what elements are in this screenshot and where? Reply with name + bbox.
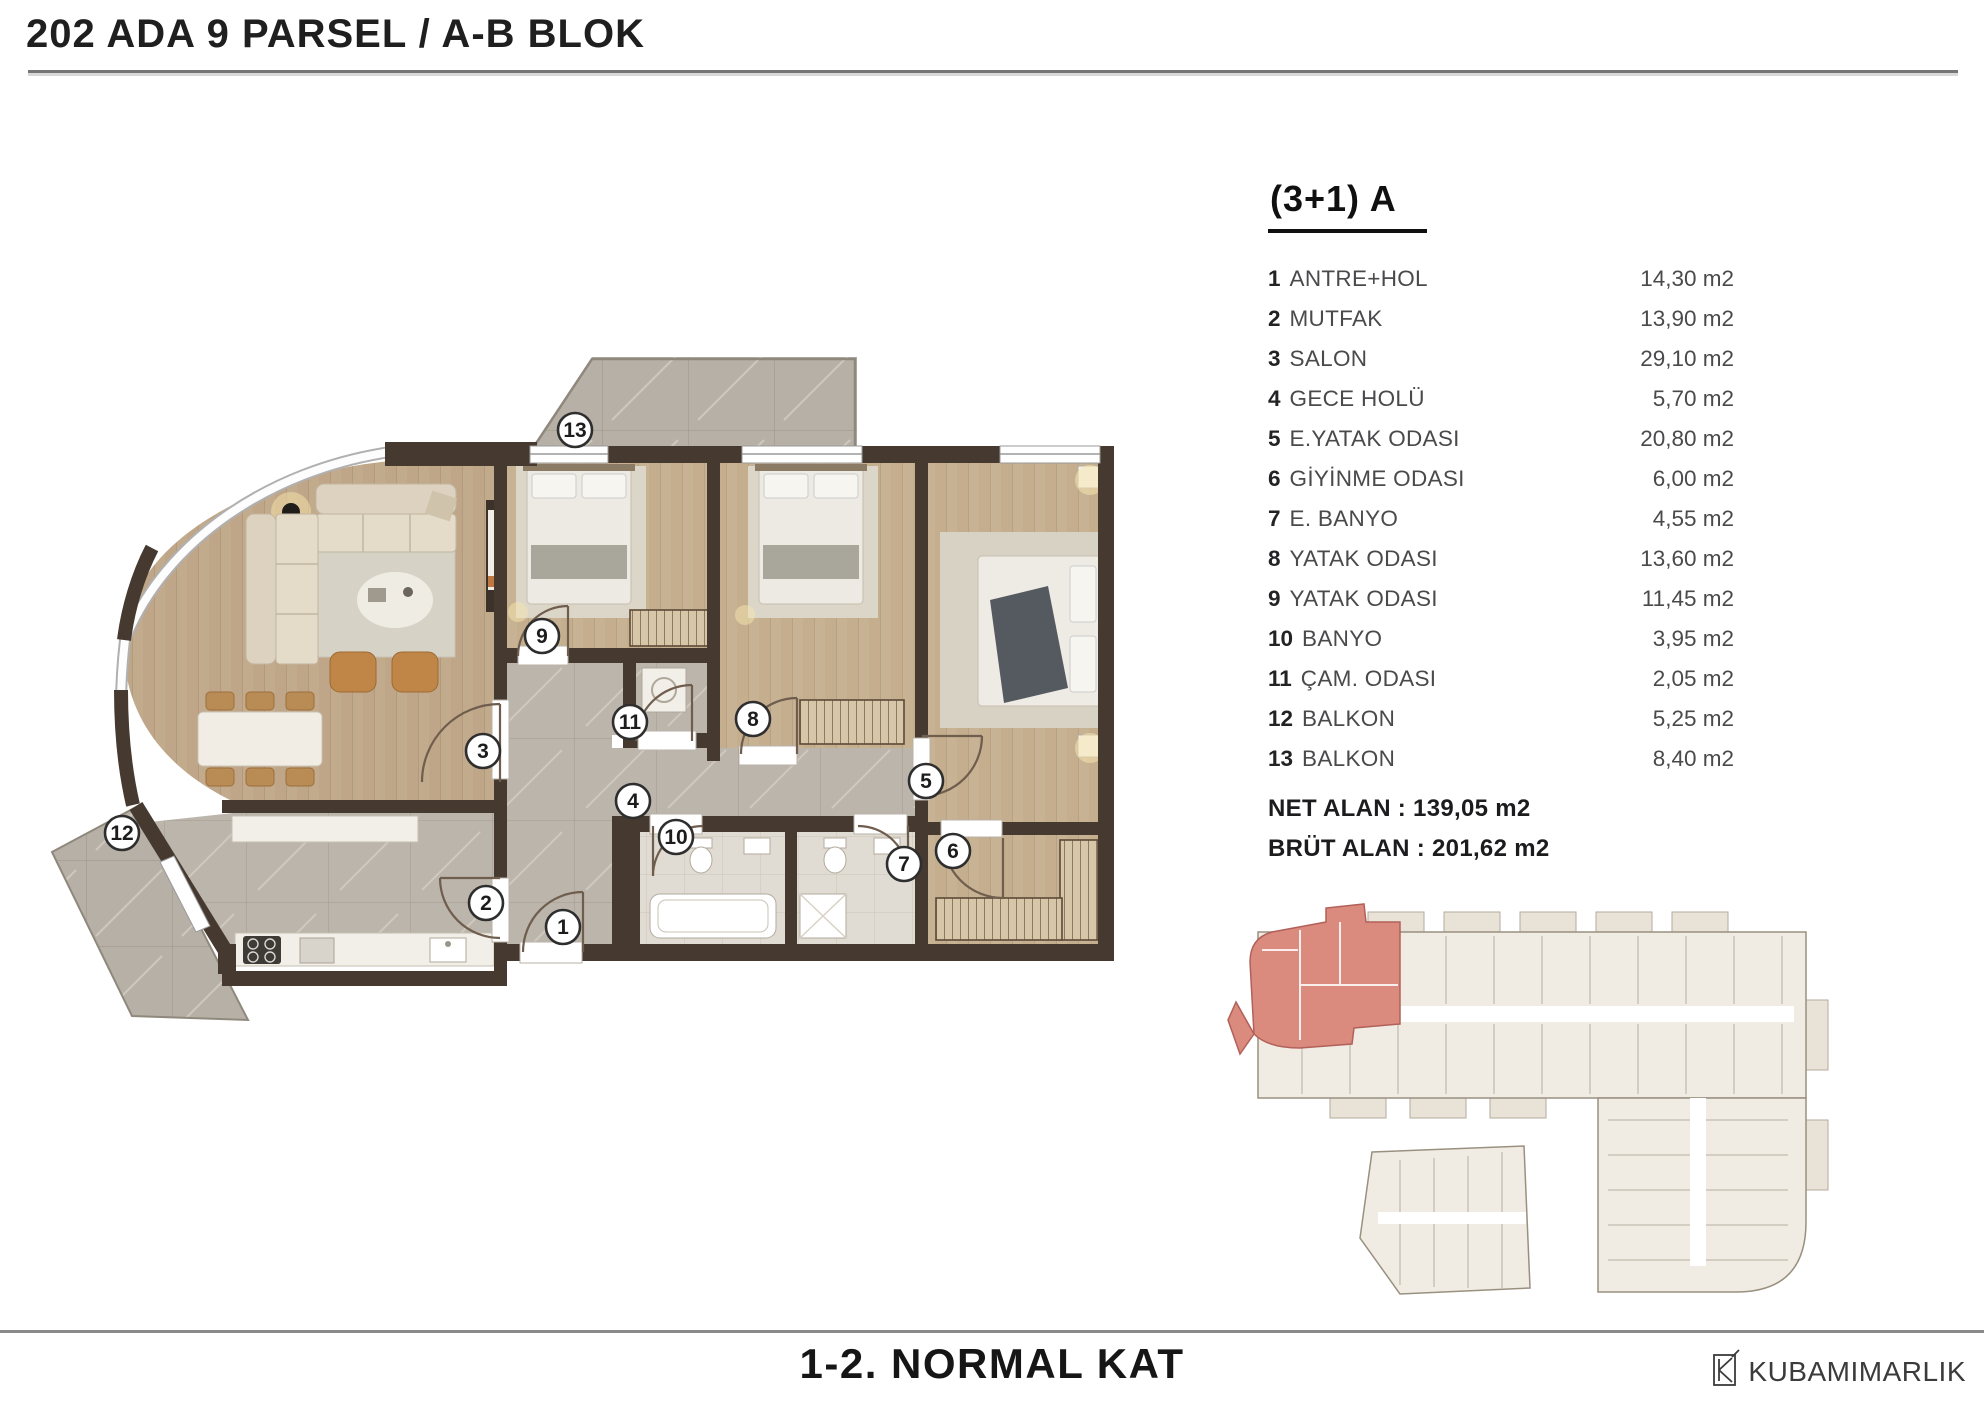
svg-text:3: 3	[477, 740, 489, 763]
svg-text:8: 8	[747, 708, 759, 731]
room-marker-12: 12	[105, 816, 139, 850]
svg-text:10: 10	[664, 826, 687, 849]
gross-area: BRÜT ALAN : 201,62 m2	[1268, 829, 1734, 869]
svg-text:12: 12	[110, 822, 133, 845]
room-area: 2,05 m2	[1653, 666, 1734, 692]
room-number: 5	[1268, 426, 1281, 452]
svg-text:2: 2	[480, 892, 492, 915]
room-marker-8: 8	[736, 702, 770, 736]
room-area: 29,10 m2	[1640, 346, 1734, 372]
legend-row: 8 YATAK ODASI 13,60 m2	[1268, 539, 1734, 579]
room-name: BALKON	[1302, 706, 1395, 732]
room-marker-1: 1	[546, 910, 580, 944]
floor-title: 1-2. NORMAL KAT	[0, 1340, 1984, 1388]
room-name: ÇAM. ODASI	[1301, 666, 1437, 692]
room-number: 4	[1268, 386, 1281, 412]
svg-text:7: 7	[898, 853, 910, 876]
legend-row: 12 BALKON 5,25 m2	[1268, 699, 1734, 739]
room-area: 8,40 m2	[1653, 746, 1734, 772]
legend-row: 6 GİYİNME ODASI 6,00 m2	[1268, 459, 1734, 499]
legend-row: 7 E. BANYO 4,55 m2	[1268, 499, 1734, 539]
room-marker-5: 5	[909, 764, 943, 798]
room-name: ANTRE+HOL	[1290, 266, 1428, 292]
room-name: GECE HOLÜ	[1290, 386, 1425, 412]
room-number: 8	[1268, 546, 1281, 572]
armchair	[392, 652, 438, 692]
room-name: YATAK ODASI	[1290, 546, 1438, 572]
room-list: 1 ANTRE+HOL 14,30 m2 2 MUTFAK 13,90 m2 3…	[1268, 259, 1734, 779]
room-area: 13,90 m2	[1640, 306, 1734, 332]
room-name: E.YATAK ODASI	[1290, 426, 1460, 452]
legend-row: 13 BALKON 8,40 m2	[1268, 739, 1734, 779]
room-marker-11: 11	[613, 705, 647, 739]
legend-row: 2 MUTFAK 13,90 m2	[1268, 299, 1734, 339]
room-number: 6	[1268, 466, 1281, 492]
wall-arc-segment	[121, 690, 133, 805]
sink	[744, 838, 770, 854]
room-marker-13: 13	[558, 413, 592, 447]
dining-table	[198, 712, 322, 766]
key-plan	[1228, 904, 1828, 1294]
room-number: 2	[1268, 306, 1281, 332]
wardrobe	[936, 898, 1062, 940]
legend-row: 3 SALON 29,10 m2	[1268, 339, 1734, 379]
area-totals: NET ALAN : 139,05 m2 BRÜT ALAN : 201,62 …	[1268, 789, 1734, 869]
room-number: 3	[1268, 346, 1281, 372]
room-area: 4,55 m2	[1653, 506, 1734, 532]
room-number: 10	[1268, 626, 1293, 652]
toilet	[690, 847, 712, 873]
svg-text:13: 13	[563, 419, 586, 442]
svg-text:6: 6	[947, 840, 959, 863]
room-marker-6: 6	[936, 834, 970, 868]
footer-divider	[0, 1330, 1984, 1333]
room-marker-10: 10	[659, 820, 693, 854]
room-marker-7: 7	[887, 847, 921, 881]
floorplan-sheet: { "header": { "title": "202 ADA 9 PARSEL…	[0, 0, 1984, 1403]
room-name: YATAK ODASI	[1290, 586, 1438, 612]
room-area: 14,30 m2	[1640, 266, 1734, 292]
room-number: 12	[1268, 706, 1293, 732]
oven	[300, 938, 334, 963]
room-name: GİYİNME ODASI	[1290, 466, 1465, 492]
legend-row: 5 E.YATAK ODASI 20,80 m2	[1268, 419, 1734, 459]
logo-text: KUBAMIMARLIK	[1748, 1356, 1966, 1388]
room-area: 3,95 m2	[1653, 626, 1734, 652]
bathtub	[650, 894, 776, 938]
wardrobe	[630, 610, 715, 646]
legend-row: 10 BANYO 3,95 m2	[1268, 619, 1734, 659]
svg-text:11: 11	[619, 711, 642, 734]
room-area: 11,45 m2	[1642, 586, 1734, 612]
room-number: 11	[1268, 666, 1292, 692]
room-number: 9	[1268, 586, 1281, 612]
kitchen-counter-top	[232, 816, 418, 842]
company-logo: KUBAMIMARLIK	[1711, 1348, 1966, 1395]
logo-icon	[1711, 1348, 1741, 1395]
legend: (3+1) A 1 ANTRE+HOL 14,30 m2 2 MUTFAK 13…	[1268, 178, 1734, 869]
wardrobe	[1060, 840, 1098, 940]
legend-row: 9 YATAK ODASI 11,45 m2	[1268, 579, 1734, 619]
room-area: 20,80 m2	[1640, 426, 1734, 452]
room-marker-4: 4	[616, 784, 650, 818]
room-marker-9: 9	[525, 619, 559, 653]
toilet	[824, 847, 846, 873]
svg-text:1: 1	[557, 916, 569, 939]
svg-text:5: 5	[920, 770, 932, 793]
room-area: 5,25 m2	[1653, 706, 1734, 732]
svg-text:9: 9	[536, 625, 548, 648]
room-area: 5,70 m2	[1653, 386, 1734, 412]
room-area: 13,60 m2	[1640, 546, 1734, 572]
svg-text:4: 4	[627, 790, 639, 813]
room-area: 6,00 m2	[1653, 466, 1734, 492]
room-marker-3: 3	[466, 734, 500, 768]
armchair	[330, 652, 376, 692]
room-number: 7	[1268, 506, 1281, 532]
room-name: BANYO	[1302, 626, 1382, 652]
room-number: 13	[1268, 746, 1293, 772]
room-name: BALKON	[1302, 746, 1395, 772]
room-number: 1	[1268, 266, 1281, 292]
room-name: MUTFAK	[1290, 306, 1383, 332]
legend-row: 1 ANTRE+HOL 14,30 m2	[1268, 259, 1734, 299]
unit-type-heading: (3+1) A	[1268, 178, 1427, 233]
net-area: NET ALAN : 139,05 m2	[1268, 789, 1734, 829]
room-marker-2: 2	[469, 886, 503, 920]
legend-row: 11 ÇAM. ODASI 2,05 m2	[1268, 659, 1734, 699]
room-name: SALON	[1290, 346, 1368, 372]
wardrobe	[800, 700, 904, 744]
room-name: E. BANYO	[1290, 506, 1399, 532]
legend-row: 4 GECE HOLÜ 5,70 m2	[1268, 379, 1734, 419]
